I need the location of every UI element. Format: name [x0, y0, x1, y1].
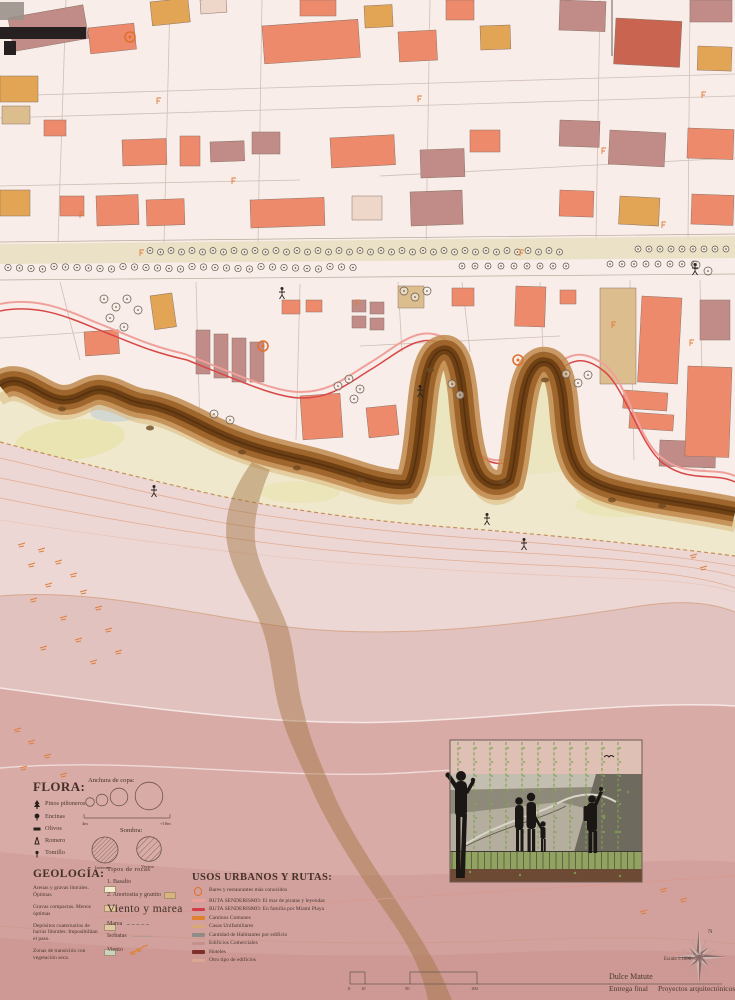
- inset-render: [445, 740, 642, 882]
- legend-row: Otro tipo de edificios: [192, 957, 342, 963]
- usos-item-label: Casas Unifamiliares: [209, 923, 253, 929]
- holm-oak-icon: [33, 813, 41, 821]
- legend-row: Isobatas: [107, 933, 202, 939]
- flora-diagrams: Anchura de copa: 4m +10m Sombra: Inviern…: [80, 772, 192, 872]
- canopy-min-label: 4m: [82, 821, 88, 826]
- legend-row: Hoteles: [192, 949, 342, 955]
- wind-arrows-icon: [128, 945, 150, 955]
- geology-item-label: Gravas compactas. Menos óptimas: [33, 904, 101, 918]
- pine-icon: [33, 800, 41, 809]
- common-paths-swatch: [192, 916, 205, 920]
- scale-tick-label: 50: [405, 986, 410, 991]
- commercial-buildings-swatch: [192, 942, 205, 946]
- scale-tick-label: 10: [361, 986, 366, 991]
- scale-tick-label: 100: [471, 986, 478, 991]
- wind-tide-legend: Viento y marea Marea Isobatas Viento: [107, 903, 202, 955]
- north-label: N: [708, 928, 713, 935]
- usos-item-label: Otro tipo de edificios: [209, 957, 256, 963]
- delivery-label: Entrega final: [609, 984, 648, 993]
- thyme-icon: [33, 850, 41, 858]
- shade-summer-circle: [137, 837, 162, 862]
- legend-row: Bares y restaurantes más conocidos: [192, 887, 342, 896]
- other-buildings-swatch: [192, 959, 205, 963]
- scale-tick-label: 0: [348, 986, 350, 991]
- course-label: Proyectos arquitectónicos 2: [658, 984, 735, 993]
- isobath-label: Isobatas: [107, 933, 127, 939]
- tide-line-swatch: [127, 924, 149, 925]
- rock-item-label: 1. Basalto: [107, 879, 131, 885]
- canopy-scale-bracket: [84, 814, 170, 818]
- scale-note: Escala 1:1000: [664, 957, 691, 962]
- wind-label: Viento: [107, 947, 123, 953]
- legend-row: Caminos Comunes: [192, 915, 342, 921]
- legend-row: Marea: [107, 921, 202, 927]
- geology-item-label: Zonas de transición con vegetación seca.: [33, 948, 101, 962]
- canopy-width-title: Anchura de copa:: [88, 777, 135, 784]
- canopy-circles: [86, 782, 163, 810]
- canopy-max-label: +10m: [160, 821, 171, 826]
- inhabitants-swatch: [192, 933, 205, 937]
- legend-row: Cantidad de Habitantes por edificio: [192, 932, 342, 938]
- geology-item-label: Arenas y gravas litorales. Óptimas: [33, 885, 101, 899]
- usos-item-label: Cantidad de Habitantes por edificio: [209, 932, 287, 938]
- olive-icon: [33, 826, 41, 832]
- usos-item-label: Bares y restaurantes más conocidos: [209, 887, 287, 893]
- legend-row: RUTA SENDERISMO: En familia por Miami Pl…: [192, 906, 342, 912]
- bar-marker-icon: [194, 887, 203, 896]
- isobath-line-swatch: [132, 936, 154, 937]
- geology-item-label: Depósitos cuaternarios de barras litoral…: [33, 923, 101, 944]
- wind-tide-title: Viento y marea: [107, 903, 202, 915]
- legend-row: 2. Anortosita y granito: [107, 891, 197, 899]
- flora-item-label: Olivos: [45, 826, 62, 833]
- usos-item-label: Hoteles: [209, 949, 226, 955]
- tide-label: Marea: [107, 921, 122, 927]
- route-family-swatch: [192, 908, 205, 911]
- legend-row: Viento: [107, 945, 202, 955]
- hotels-swatch: [192, 950, 205, 954]
- legend-row: RUTA SENDERISMO: El mar de piratas y ley…: [192, 898, 342, 904]
- site-plan-sheet: FLORA: Pinos piñoneros Encinas Olivos Ro…: [0, 0, 735, 1000]
- rock-types-legend: Tipos de rocas 1. Basalto 2. Anortosita …: [107, 866, 197, 899]
- shade-title: Sombra:: [120, 827, 143, 834]
- single-family-homes-swatch: [192, 925, 205, 929]
- legend-row: 1. Basalto: [107, 879, 197, 885]
- rosemary-icon: [33, 837, 41, 845]
- rock-types-title: Tipos de rocas: [107, 866, 197, 873]
- urban-uses-title: USOS URBANOS Y RUTAS:: [192, 872, 347, 883]
- rock-item-label: 2. Anortosita y granito: [107, 892, 161, 898]
- urban-uses-legend: USOS URBANOS Y RUTAS: Bares y restaurant…: [192, 872, 347, 964]
- route-pirates-swatch: [192, 899, 205, 902]
- usos-item-label: Caminos Comunes: [209, 915, 251, 921]
- author-name: Dulce Matute: [609, 972, 653, 981]
- flora-item-label: Romero: [45, 838, 65, 845]
- usos-item-label: Edificios Comerciales: [209, 940, 258, 946]
- shade-winter-circle: [92, 837, 118, 863]
- legend-row: Edificios Comerciales: [192, 940, 342, 946]
- usos-item-label: RUTA SENDERISMO: En familia por Miami Pl…: [209, 906, 324, 912]
- usos-item-label: RUTA SENDERISMO: El mar de piratas y ley…: [209, 898, 325, 904]
- rock-swatch: [164, 892, 176, 899]
- flora-item-label: Encinas: [45, 814, 65, 821]
- flora-item-label: Tomillo: [45, 850, 65, 857]
- legend-row: Casas Unifamiliares: [192, 923, 342, 929]
